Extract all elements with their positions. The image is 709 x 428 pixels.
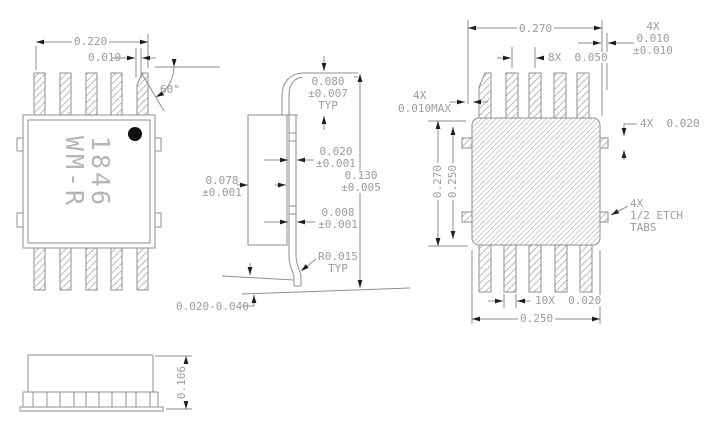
etch-tabs-label-line2: 1/2 ETCH [630,210,683,221]
dim-corner-label: 4X 0.010 ±0.010 [630,21,676,56]
tab-dim-label: 4X 0.020 [640,118,700,129]
gap-qty-label: 4X [413,90,426,101]
dim-lead-span-label: 0.270 [517,23,554,34]
dim-tab-thickness-label: 0.020 ±0.001 [314,146,358,169]
bottom-view-top-leads [479,73,589,118]
chamfer-angle-label: 60° [160,84,180,95]
package-drawing: 0.220 0.010 60° 1846 WM-R 0.080 ±0.007 T… [0,0,709,428]
seating-line-upper [222,276,294,280]
marking-line2: WM-R [61,126,87,218]
top-view [17,34,220,290]
dim-body-width-label: 0.220 [72,36,109,47]
package-marking: 1846 WM-R [61,126,113,218]
dim-overall-height-label: 0.130 ±0.005 [337,170,385,193]
pin1-dot [128,127,142,141]
front-view-body [28,355,153,392]
dim-height-inner-label: 0.250 [447,163,458,200]
dim-lead-top-label: 0.080 ±0.007 TYP [302,76,354,111]
bottom-view-bottom-leads [479,245,592,292]
bend-radius-label: R0.015 TYP [316,251,360,274]
etch-tabs-label-line3: TABS [630,222,657,233]
bottom-view [428,20,637,324]
seating-line-lower [242,288,410,294]
side-view-lead-strip [289,115,296,257]
front-view [20,355,192,411]
pin1-chamfered-lead [137,73,148,115]
dim-chamfer-offset-label: 0.010 [88,52,121,63]
etch-tabs-label-line1: 4X [630,198,643,209]
standoff-label: 0.020-0.040 [176,301,249,312]
dim-body-thickness-label: 0.078 ±0.001 [200,175,244,198]
dim-body-width-bottom-label: 0.250 [518,313,555,324]
front-view-leads [33,392,150,407]
dim-lead-thickness-label: 0.008 ±0.001 [316,207,360,230]
marking-line1: 1846 [87,126,113,218]
dim-front-height-label: 0.106 [176,364,187,401]
lead-foot [289,255,301,286]
top-view-bottom-leads [34,248,148,290]
dim-lead-pitch-label: 8X 0.050 [546,52,610,63]
bottom-view-body [472,118,600,245]
top-view-top-leads [34,73,148,115]
dim-lead-width-label: 10X 0.020 [533,295,603,306]
dim-height-outer-label: 0.270 [432,163,443,200]
side-view-body [248,115,287,245]
gap-dim-label: 0.010MAX [398,103,451,114]
front-view-base [20,407,163,411]
